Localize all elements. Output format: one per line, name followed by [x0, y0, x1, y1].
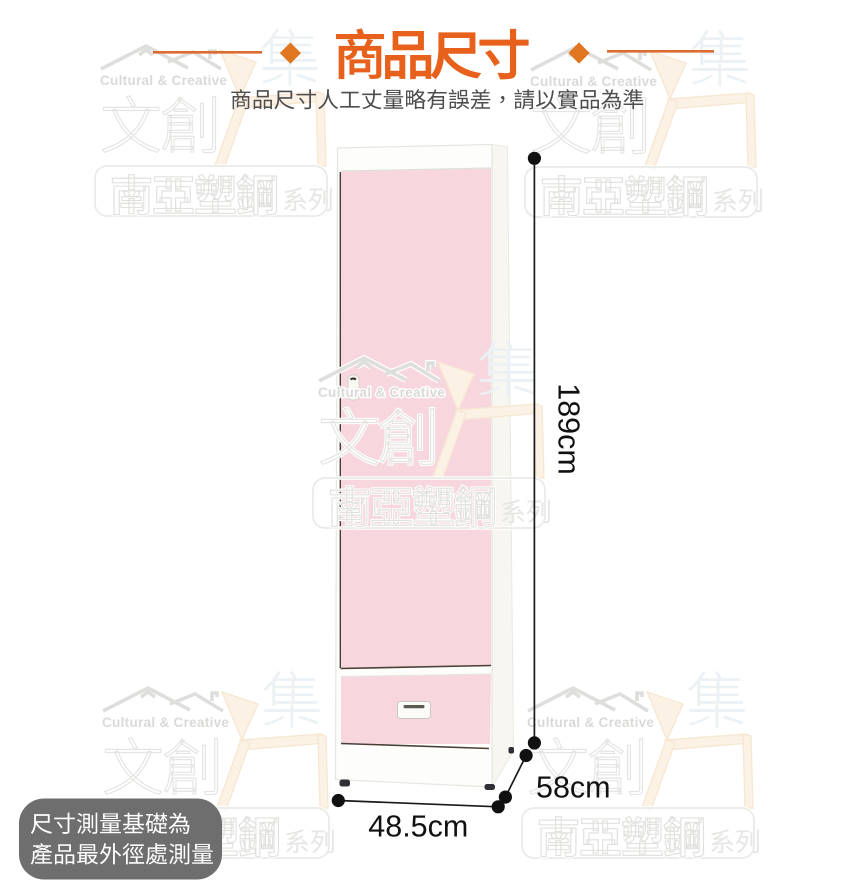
svg-text:48.5cm: 48.5cm: [368, 810, 468, 844]
svg-text:189cm: 189cm: [552, 383, 586, 475]
svg-text:58cm: 58cm: [536, 770, 611, 804]
